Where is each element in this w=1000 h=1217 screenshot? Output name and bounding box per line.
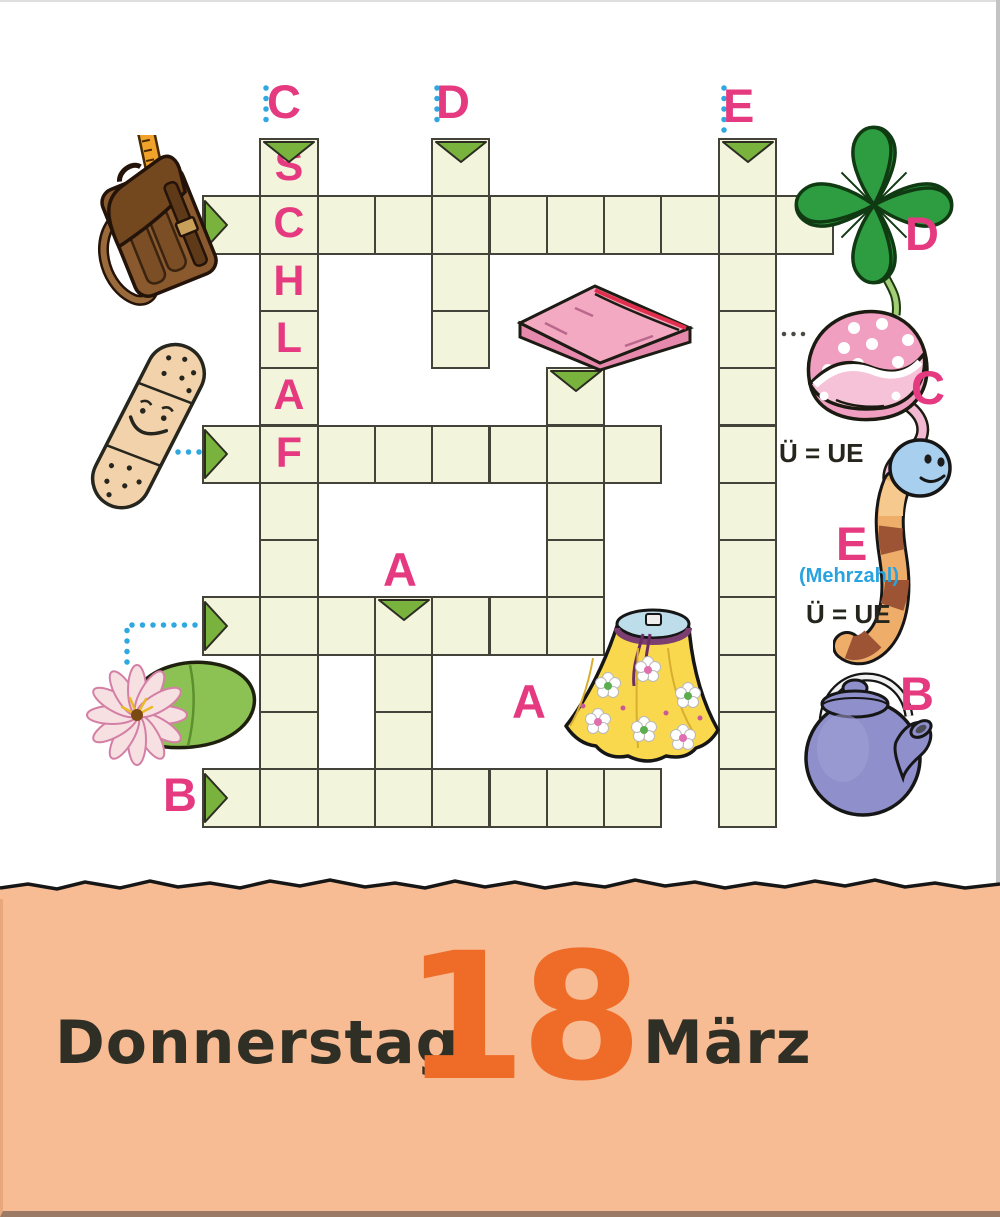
puzzle-cell[interactable] (718, 768, 777, 827)
puzzle-cell[interactable] (718, 596, 777, 655)
prefilled-letter: L (276, 317, 302, 360)
puzzle-cell[interactable] (374, 425, 433, 484)
hint-umlaut-worm: Ü = UE (806, 601, 891, 627)
prefilled-letter: A (273, 374, 304, 417)
clue-letter-e-worm: E (836, 520, 867, 567)
puzzle-cell[interactable] (660, 195, 719, 254)
calendar-page: SCHLAF C D E A B D C E B A Ü = UE (Mehrz… (0, 0, 1000, 1217)
puzzle-cell[interactable] (431, 425, 490, 484)
puzzle-cell[interactable] (431, 195, 490, 254)
clue-letter-b-row: B (163, 771, 197, 818)
puzzle-cell[interactable] (718, 310, 777, 369)
puzzle-cell[interactable] (431, 596, 490, 655)
water-lily-illustration (42, 643, 262, 773)
plaster-illustration (78, 330, 218, 525)
puzzle-cell[interactable] (431, 310, 490, 369)
puzzle-cell[interactable] (259, 539, 318, 598)
puzzle-cell[interactable] (546, 482, 605, 541)
puzzle-cell[interactable] (718, 195, 777, 254)
prefilled-letter: C (273, 202, 304, 245)
puzzle-cell[interactable] (259, 596, 318, 655)
puzzle-cell[interactable] (259, 711, 318, 770)
hint-umlaut-nightcap: Ü = UE (779, 440, 864, 466)
clue-letter-e-top: E (723, 82, 754, 129)
puzzle-cell[interactable] (718, 539, 777, 598)
puzzle-cell[interactable] (718, 654, 777, 713)
clover-illustration (782, 85, 954, 325)
puzzle-cell[interactable] (259, 482, 318, 541)
puzzle-cell[interactable] (317, 596, 376, 655)
word-start-arrow-down (435, 141, 488, 165)
clue-letter-a-skirt: A (512, 678, 546, 725)
puzzle-cell[interactable]: C (259, 195, 318, 254)
school-satchel-illustration (85, 135, 223, 317)
puzzle-cell[interactable] (489, 425, 548, 484)
puzzle-cell[interactable] (546, 768, 605, 827)
clue-letter-d-top: D (436, 78, 470, 125)
month-label: März (643, 1008, 812, 1078)
puzzle-cell[interactable] (489, 768, 548, 827)
word-start-arrow-down (378, 599, 431, 623)
puzzle-cell[interactable] (603, 425, 662, 484)
word-start-arrow-down (550, 370, 603, 394)
puzzle-cell[interactable]: A (259, 367, 318, 426)
puzzle-cell[interactable] (603, 195, 662, 254)
puzzle-cell[interactable] (546, 425, 605, 484)
prefilled-letter: H (273, 260, 304, 303)
puzzle-cell[interactable] (259, 654, 318, 713)
puzzle-cell[interactable] (431, 768, 490, 827)
puzzle-cell[interactable] (374, 768, 433, 827)
puzzle-cell[interactable]: L (259, 310, 318, 369)
weekday-label: Donnerstag (55, 1008, 460, 1078)
puzzle-cell[interactable] (603, 768, 662, 827)
puzzle-cell[interactable]: H (259, 253, 318, 312)
puzzle-cell[interactable] (374, 654, 433, 713)
word-start-arrow-right (204, 773, 229, 825)
puzzle-cell[interactable] (317, 195, 376, 254)
puzzle-cell[interactable] (489, 195, 548, 254)
clue-letter-c-top: C (267, 78, 301, 125)
puzzle-cell[interactable] (317, 768, 376, 827)
puzzle-cell[interactable] (317, 425, 376, 484)
prefilled-letter: F (276, 432, 302, 475)
puzzle-cell[interactable]: F (259, 425, 318, 484)
clue-letter-c-hat: C (911, 364, 945, 411)
blanket-illustration (505, 268, 705, 373)
puzzle-cell[interactable] (374, 195, 433, 254)
clue-letter-b-teapot: B (900, 670, 934, 717)
puzzle-cell[interactable] (259, 768, 318, 827)
puzzle-cell[interactable] (718, 425, 777, 484)
hint-plural-worm: (Mehrzahl) (799, 566, 899, 586)
word-start-arrow-down (263, 141, 316, 165)
word-start-arrow-down (722, 141, 775, 165)
puzzle-cell[interactable] (489, 596, 548, 655)
clue-letter-a-mid: A (383, 546, 417, 593)
puzzle-cell[interactable] (546, 195, 605, 254)
puzzle-cell[interactable] (431, 253, 490, 312)
puzzle-cell[interactable] (374, 711, 433, 770)
clue-letter-d-clover: D (905, 210, 939, 257)
puzzle-cell[interactable] (718, 482, 777, 541)
puzzle-cell[interactable] (546, 539, 605, 598)
puzzle-cell[interactable] (718, 711, 777, 770)
torn-paper-edge (0, 872, 1000, 902)
day-number: 18 (404, 930, 637, 1106)
puzzle-cell[interactable] (718, 253, 777, 312)
puzzle-cell[interactable] (718, 367, 777, 426)
skirt-illustration (548, 598, 723, 768)
